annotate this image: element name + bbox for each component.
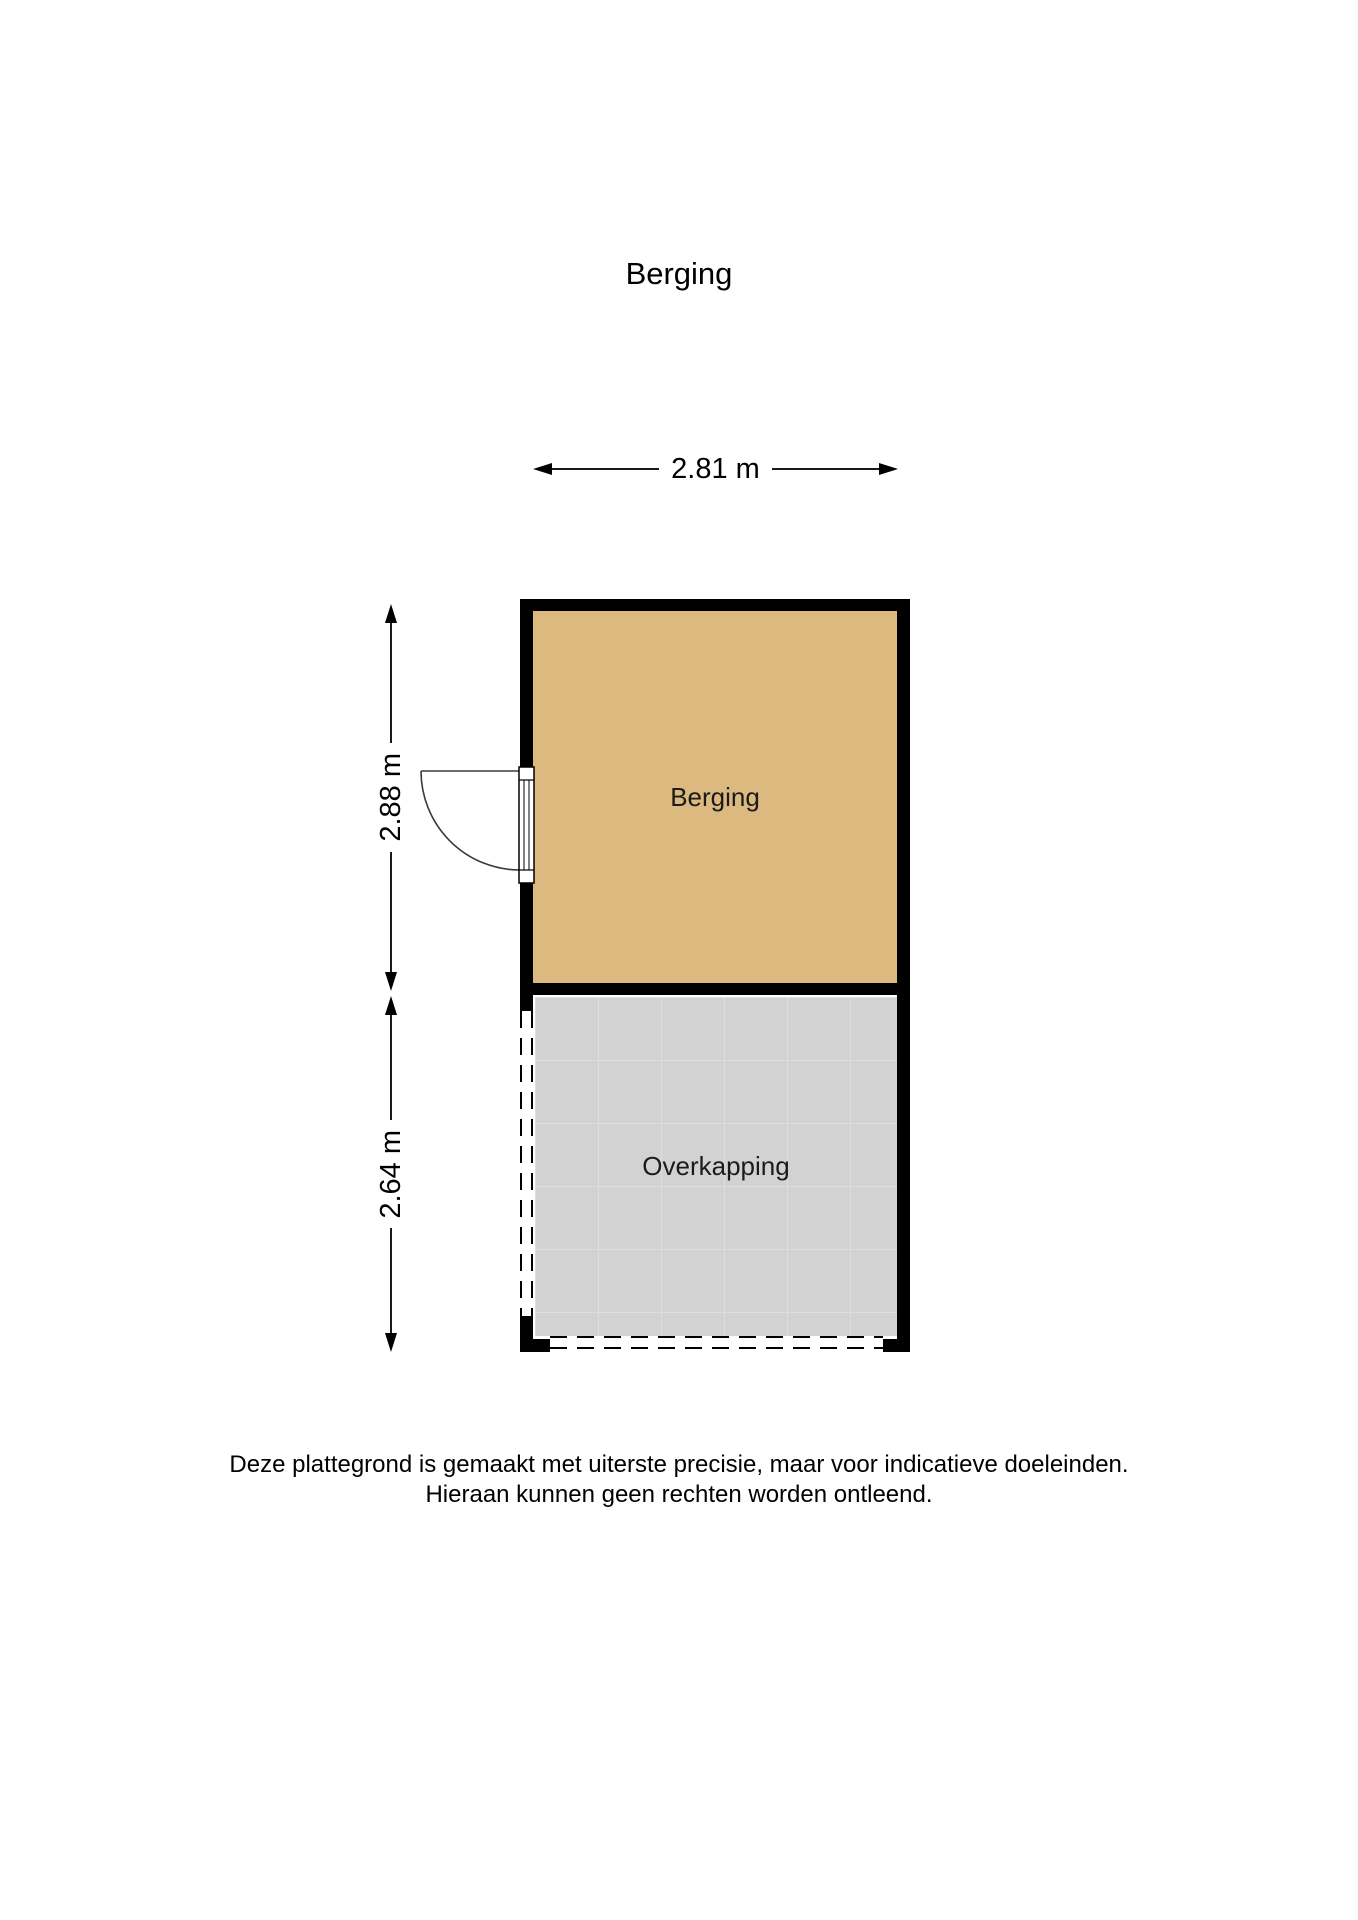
dimension-overkapping-height-label: 2.64 m xyxy=(375,1120,408,1229)
door-swing-arc xyxy=(421,771,520,870)
room-label-berging: Berging xyxy=(670,782,760,813)
dimension-overkapping-height: 2.64 m xyxy=(371,996,411,1352)
floor-plan: Berging Overkapping xyxy=(520,599,910,1352)
open-wall-dashed-left-inner xyxy=(531,1011,533,1316)
dimension-line-bottom xyxy=(390,1228,392,1333)
disclaimer-line1: Deze plattegrond is gemaakt met uiterste… xyxy=(0,1450,1358,1480)
dimension-line-left xyxy=(552,468,659,470)
open-wall-dashed-left-outer xyxy=(520,1011,522,1316)
wall-foot-bottom-left xyxy=(520,1339,550,1352)
dimension-line-right xyxy=(772,468,879,470)
dimension-line-top xyxy=(390,1015,392,1120)
arrow-right-icon xyxy=(879,463,898,475)
room-overkapping-floor: Overkapping xyxy=(535,997,897,1336)
open-wall-dashed-bottom-outer xyxy=(550,1336,883,1338)
arrow-down-icon xyxy=(385,1333,397,1352)
open-wall-dashed-bottom-inner xyxy=(550,1347,883,1349)
room-label-overkapping: Overkapping xyxy=(642,1151,789,1182)
dimension-berging-height: 2.88 m xyxy=(371,604,411,991)
wall-right xyxy=(897,995,910,1352)
arrow-down-icon xyxy=(385,972,397,991)
dimension-width: 2.81 m xyxy=(533,449,898,489)
room-overkapping: Overkapping xyxy=(520,995,910,1352)
wall-foot-bottom-right xyxy=(883,1339,910,1352)
room-berging-walls: Berging xyxy=(520,599,910,995)
disclaimer-line2: Hieraan kunnen geen rechten worden ontle… xyxy=(0,1480,1358,1510)
floorplan-page: Berging 2.81 m 2.88 m 2.64 m Berging xyxy=(0,0,1358,1920)
dimension-berging-height-label: 2.88 m xyxy=(375,743,408,852)
arrow-up-icon xyxy=(385,996,397,1015)
dimension-line-top xyxy=(390,623,392,743)
page-title: Berging xyxy=(0,254,1358,294)
room-berging-floor: Berging xyxy=(533,611,897,983)
arrow-up-icon xyxy=(385,604,397,623)
dimension-line-bottom xyxy=(390,852,392,972)
arrow-left-icon xyxy=(533,463,552,475)
wall-stub-top-left xyxy=(520,995,533,1011)
dimension-width-label: 2.81 m xyxy=(659,453,772,486)
disclaimer: Deze plattegrond is gemaakt met uiterste… xyxy=(0,1450,1358,1510)
